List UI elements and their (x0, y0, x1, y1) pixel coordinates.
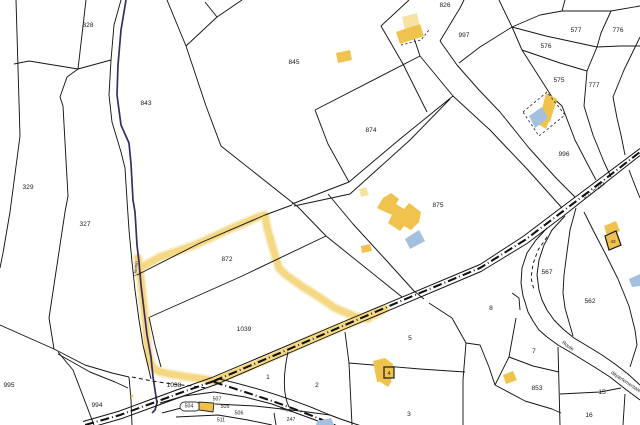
svg-text:872: 872 (221, 256, 232, 263)
svg-text:562: 562 (584, 298, 595, 305)
svg-text:776: 776 (612, 27, 623, 34)
svg-text:853: 853 (531, 385, 542, 392)
svg-text:777: 777 (588, 82, 599, 89)
svg-text:874: 874 (365, 127, 376, 134)
svg-text:327: 327 (79, 221, 90, 228)
svg-text:15: 15 (598, 389, 606, 396)
svg-text:5: 5 (408, 335, 412, 342)
svg-text:1: 1 (266, 374, 270, 381)
svg-text:577: 577 (570, 27, 581, 34)
svg-text:875: 875 (432, 202, 443, 209)
svg-text:2: 2 (315, 382, 319, 389)
svg-text:506: 506 (235, 411, 244, 417)
svg-text:8: 8 (489, 305, 493, 312)
svg-text:43: 43 (610, 239, 616, 244)
svg-text:995: 995 (3, 382, 14, 389)
svg-text:511: 511 (217, 418, 225, 424)
svg-text:997: 997 (458, 32, 469, 39)
svg-text:507: 507 (213, 397, 222, 403)
svg-text:3: 3 (407, 411, 411, 418)
svg-text:328: 328 (82, 22, 93, 29)
svg-text:576: 576 (540, 43, 551, 50)
svg-text:1039: 1039 (237, 326, 252, 333)
svg-text:845: 845 (288, 59, 299, 66)
svg-text:575: 575 (553, 77, 564, 84)
svg-text:505: 505 (221, 404, 230, 410)
svg-text:247: 247 (287, 417, 296, 423)
svg-text:826: 826 (439, 2, 450, 9)
svg-text:16: 16 (585, 412, 593, 419)
svg-text:994: 994 (91, 402, 102, 409)
svg-text:4: 4 (388, 371, 391, 377)
svg-text:996: 996 (558, 151, 569, 158)
svg-text:7: 7 (532, 348, 536, 355)
svg-text:329: 329 (22, 184, 33, 191)
svg-text:567: 567 (541, 269, 552, 276)
svg-text:843: 843 (140, 100, 151, 107)
svg-text:504: 504 (185, 404, 194, 410)
svg-text:1038: 1038 (167, 382, 182, 389)
